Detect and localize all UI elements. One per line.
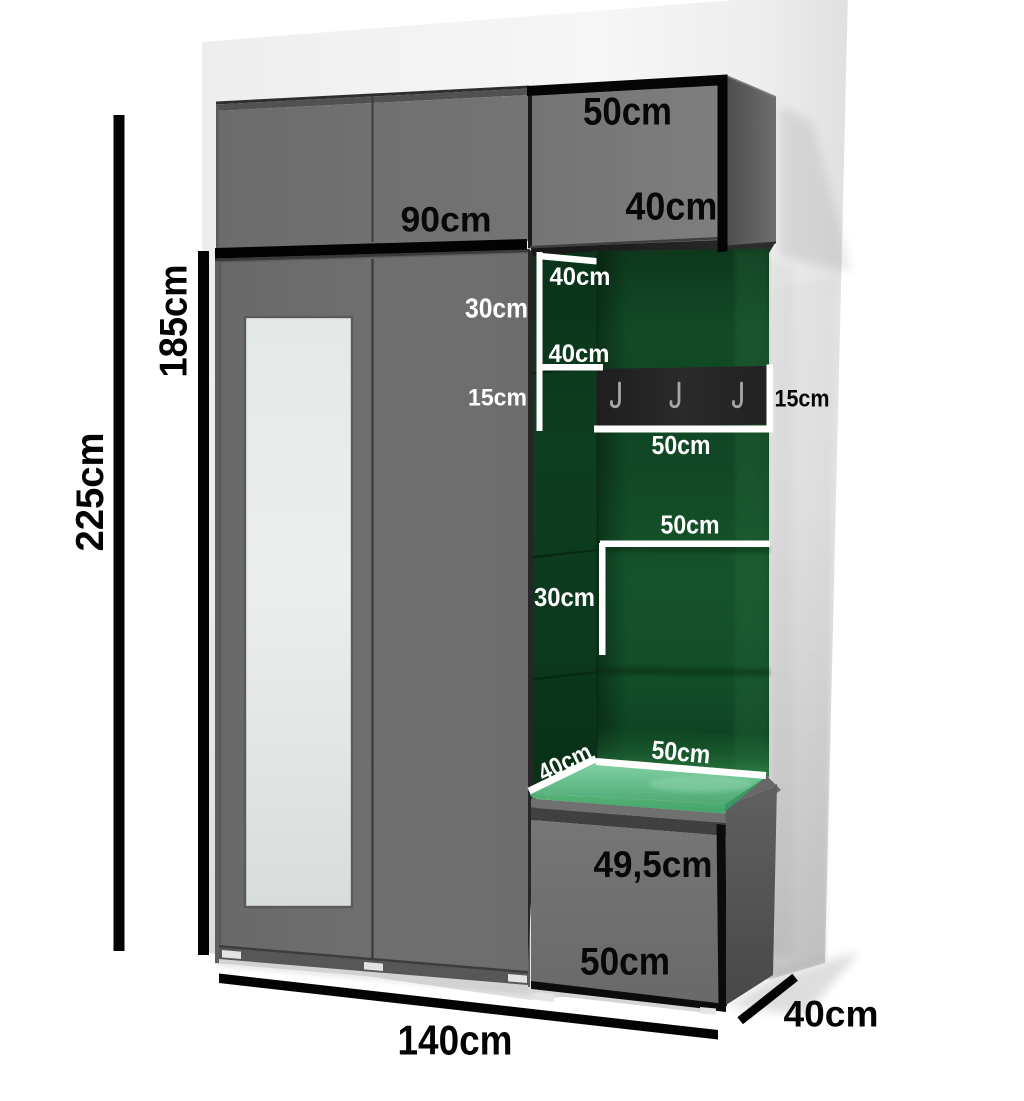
svg-text:30cm: 30cm (465, 292, 528, 323)
svg-text:40cm: 40cm (625, 186, 717, 229)
svg-text:50cm: 50cm (650, 734, 711, 769)
svg-text:185cm: 185cm (153, 265, 196, 378)
svg-text:50cm: 50cm (580, 941, 670, 984)
svg-text:40cm: 40cm (784, 993, 879, 1035)
svg-text:49,5cm: 49,5cm (594, 844, 713, 885)
svg-text:50cm: 50cm (652, 432, 711, 460)
svg-text:40cm: 40cm (549, 340, 610, 368)
svg-text:140cm: 140cm (398, 1017, 513, 1064)
svg-text:50cm: 50cm (583, 91, 672, 134)
svg-text:50cm: 50cm (661, 510, 720, 540)
svg-text:90cm: 90cm (401, 200, 492, 240)
svg-text:225cm: 225cm (69, 433, 112, 552)
svg-text:15cm: 15cm (468, 384, 527, 411)
svg-text:40cm: 40cm (550, 263, 611, 291)
svg-text:30cm: 30cm (534, 582, 595, 612)
svg-text:15cm: 15cm (775, 385, 830, 412)
